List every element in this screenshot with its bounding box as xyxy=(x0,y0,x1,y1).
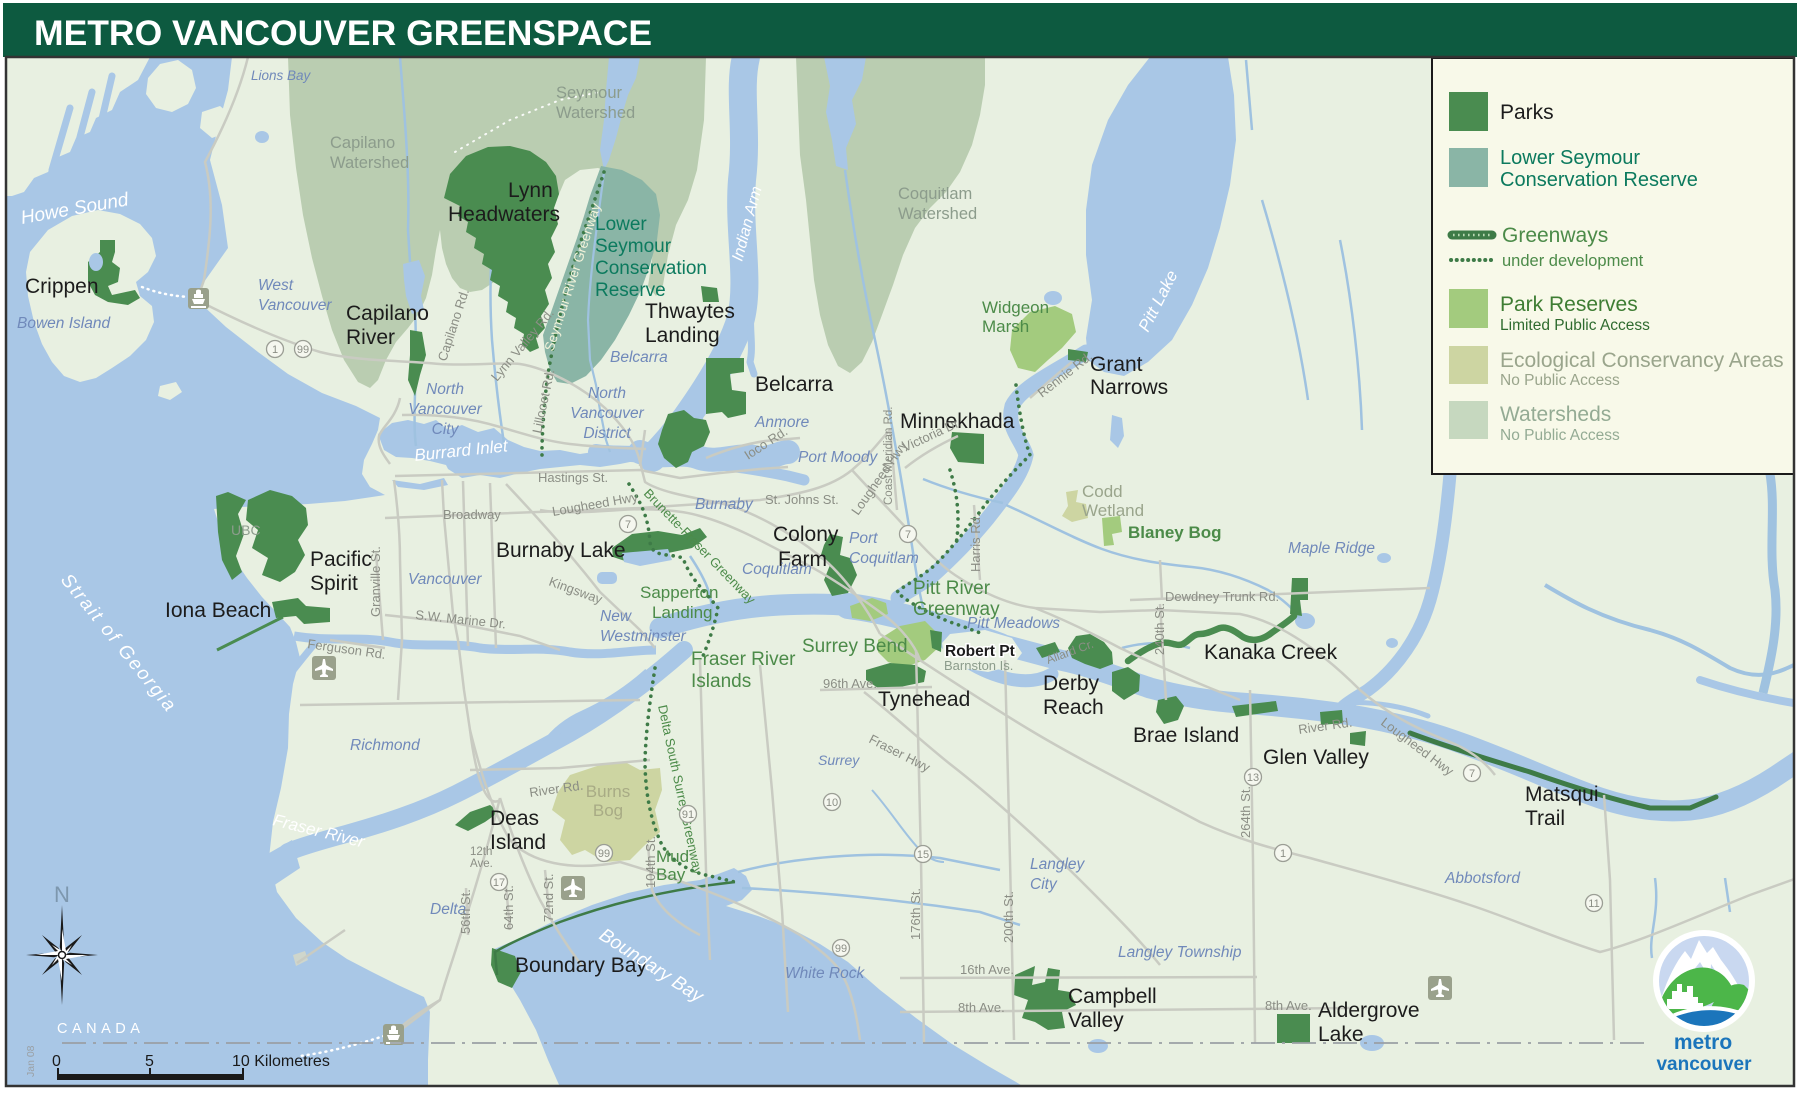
svg-text:Matsqui: Matsqui xyxy=(1525,783,1599,806)
svg-text:Vancouver: Vancouver xyxy=(258,297,332,314)
svg-text:Vancouver: Vancouver xyxy=(408,571,482,588)
svg-text:Derby: Derby xyxy=(1043,672,1100,695)
svg-text:Park Reserves: Park Reserves xyxy=(1500,293,1638,316)
svg-text:Conservation: Conservation xyxy=(595,258,707,279)
svg-text:8th Ave.: 8th Ave. xyxy=(958,1000,1005,1015)
svg-text:99: 99 xyxy=(598,848,610,860)
svg-text:Pitt River: Pitt River xyxy=(913,578,991,599)
svg-text:Spirit: Spirit xyxy=(310,572,358,595)
svg-text:Westminster: Westminster xyxy=(600,628,687,645)
svg-text:District: District xyxy=(583,425,631,442)
svg-text:White Rock: White Rock xyxy=(785,965,865,982)
svg-text:Watersheds: Watersheds xyxy=(1500,403,1611,426)
svg-text:Campbell: Campbell xyxy=(1068,985,1157,1008)
svg-text:Pitt Meadows: Pitt Meadows xyxy=(967,615,1060,632)
svg-text:Dewdney Trunk Rd.: Dewdney Trunk Rd. xyxy=(1165,589,1279,604)
svg-text:Watershed: Watershed xyxy=(898,205,977,223)
svg-text:Capilano: Capilano xyxy=(330,134,395,152)
svg-text:Greenways: Greenways xyxy=(1502,224,1608,247)
svg-text:8th Ave.: 8th Ave. xyxy=(1265,998,1312,1013)
svg-text:7: 7 xyxy=(625,519,631,531)
svg-text:Vancouver: Vancouver xyxy=(408,401,482,418)
svg-text:Surrey: Surrey xyxy=(818,752,860,768)
svg-text:10: 10 xyxy=(826,797,838,809)
svg-text:Barnston Is.: Barnston Is. xyxy=(944,658,1013,673)
svg-text:Jan 08: Jan 08 xyxy=(25,1045,37,1077)
svg-text:10 Kilometres: 10 Kilometres xyxy=(232,1053,330,1070)
svg-text:Capilano: Capilano xyxy=(346,302,429,325)
svg-text:Lower: Lower xyxy=(595,214,647,235)
svg-text:5: 5 xyxy=(145,1053,154,1070)
svg-text:15: 15 xyxy=(917,849,929,861)
svg-text:Belcarra: Belcarra xyxy=(610,349,668,366)
svg-text:Landing: Landing xyxy=(652,603,713,622)
svg-text:Vancouver: Vancouver xyxy=(570,405,644,422)
svg-text:Conservation Reserve: Conservation Reserve xyxy=(1500,169,1698,191)
svg-text:Hastings St.: Hastings St. xyxy=(538,470,608,485)
svg-text:17: 17 xyxy=(493,877,505,889)
svg-text:56th St.: 56th St. xyxy=(458,889,473,934)
svg-text:Colony: Colony xyxy=(773,523,839,546)
svg-text:Tynehead: Tynehead xyxy=(878,688,970,711)
svg-text:St. Johns St.: St. Johns St. xyxy=(765,492,839,507)
svg-text:Richmond: Richmond xyxy=(350,737,421,754)
svg-text:Headwaters: Headwaters xyxy=(448,203,560,226)
svg-text:99: 99 xyxy=(835,943,847,955)
svg-text:Burns: Burns xyxy=(586,782,630,801)
svg-text:Belcarra: Belcarra xyxy=(755,373,834,396)
svg-text:River: River xyxy=(346,326,395,349)
svg-text:Langley: Langley xyxy=(1030,856,1086,873)
svg-text:Coast Meridian Rd.: Coast Meridian Rd. xyxy=(883,407,895,505)
svg-text:1: 1 xyxy=(272,344,278,356)
svg-text:Limited Public Access: Limited Public Access xyxy=(1500,317,1650,334)
svg-text:No Public Access: No Public Access xyxy=(1500,427,1620,444)
svg-text:North: North xyxy=(426,381,464,398)
svg-text:Deas: Deas xyxy=(490,807,539,830)
svg-text:under development: under development xyxy=(1502,252,1644,270)
svg-text:Iona Beach: Iona Beach xyxy=(165,599,271,622)
svg-text:City: City xyxy=(1030,876,1058,893)
svg-text:0: 0 xyxy=(52,1053,61,1070)
svg-text:72nd St.: 72nd St. xyxy=(541,874,556,922)
svg-text:240th St.: 240th St. xyxy=(1152,603,1167,655)
svg-text:Reach: Reach xyxy=(1043,696,1104,719)
svg-text:Islands: Islands xyxy=(691,671,751,692)
svg-text:Aldergrove: Aldergrove xyxy=(1318,999,1420,1022)
svg-text:Brae Island: Brae Island xyxy=(1133,724,1239,747)
svg-text:Watershed: Watershed xyxy=(556,104,635,122)
svg-text:N: N xyxy=(54,882,70,907)
svg-text:Lions Bay: Lions Bay xyxy=(251,68,312,83)
svg-text:200th St.: 200th St. xyxy=(1001,891,1016,943)
svg-text:No Public Access: No Public Access xyxy=(1500,372,1620,389)
svg-text:Abbotsford: Abbotsford xyxy=(1444,870,1521,887)
svg-text:METRO VANCOUVER GREENSPACE: METRO VANCOUVER GREENSPACE xyxy=(34,13,652,53)
svg-text:Lynn: Lynn xyxy=(508,179,553,202)
svg-text:11: 11 xyxy=(1588,898,1599,910)
svg-text:Port Moody: Port Moody xyxy=(798,449,879,466)
svg-text:Grant: Grant xyxy=(1090,353,1143,376)
svg-text:Harris Rd.: Harris Rd. xyxy=(968,513,983,572)
svg-text:North: North xyxy=(588,385,626,402)
svg-text:New: New xyxy=(600,608,633,625)
svg-text:Codd: Codd xyxy=(1082,482,1123,501)
svg-text:7: 7 xyxy=(905,529,911,541)
svg-text:12th: 12th xyxy=(470,846,492,858)
svg-text:Lower Seymour: Lower Seymour xyxy=(1500,147,1640,169)
svg-text:Narrows: Narrows xyxy=(1090,376,1168,399)
svg-text:Trail: Trail xyxy=(1525,807,1565,830)
svg-text:Crippen: Crippen xyxy=(25,275,99,298)
svg-text:City: City xyxy=(432,421,460,438)
svg-text:Glen Valley: Glen Valley xyxy=(1263,746,1369,769)
svg-text:UBC: UBC xyxy=(231,522,261,538)
svg-text:Broadway: Broadway xyxy=(443,507,501,522)
svg-text:264th St.: 264th St. xyxy=(1238,786,1253,838)
svg-text:CANADA: CANADA xyxy=(57,1021,144,1037)
svg-text:16th Ave.: 16th Ave. xyxy=(960,962,1014,977)
svg-text:Thwaytes: Thwaytes xyxy=(645,300,735,323)
svg-text:Island: Island xyxy=(490,831,546,854)
svg-text:104th St.: 104th St. xyxy=(643,836,658,888)
svg-text:vancouver: vancouver xyxy=(1656,1054,1752,1075)
svg-text:Port: Port xyxy=(849,530,878,547)
svg-text:7: 7 xyxy=(1469,768,1475,780)
svg-text:Burnaby Lake: Burnaby Lake xyxy=(496,539,626,562)
svg-text:Maple Ridge: Maple Ridge xyxy=(1288,540,1375,557)
svg-text:Coquitlam: Coquitlam xyxy=(898,185,972,203)
svg-text:Langley Township: Langley Township xyxy=(1118,944,1242,961)
svg-text:Landing: Landing xyxy=(645,324,720,347)
svg-text:Seymour: Seymour xyxy=(556,84,623,102)
svg-text:1: 1 xyxy=(1280,848,1286,860)
svg-text:Surrey Bend: Surrey Bend xyxy=(802,636,908,657)
svg-text:91: 91 xyxy=(682,809,694,821)
svg-text:Mud: Mud xyxy=(656,847,689,866)
svg-text:Ecological Conservancy Areas: Ecological Conservancy Areas xyxy=(1500,349,1784,372)
svg-text:Bowen Island: Bowen Island xyxy=(17,315,111,332)
svg-text:Ave.: Ave. xyxy=(470,858,493,870)
svg-text:Blaney Bog: Blaney Bog xyxy=(1128,523,1222,542)
svg-text:Kanaka Creek: Kanaka Creek xyxy=(1204,641,1338,664)
svg-text:Burnaby: Burnaby xyxy=(695,496,754,513)
svg-text:Bog: Bog xyxy=(593,801,623,820)
svg-text:99: 99 xyxy=(297,344,309,356)
svg-text:West: West xyxy=(258,277,294,294)
svg-text:Granville St.: Granville St. xyxy=(368,546,383,617)
svg-text:Coquitlam: Coquitlam xyxy=(742,561,812,578)
svg-text:Valley: Valley xyxy=(1068,1009,1124,1032)
svg-text:96th Ave.: 96th Ave. xyxy=(823,676,877,691)
svg-text:metro: metro xyxy=(1674,1031,1732,1054)
svg-text:Seymour: Seymour xyxy=(595,236,672,257)
svg-text:Wetland: Wetland xyxy=(1082,501,1144,520)
svg-text:Pacific: Pacific xyxy=(310,548,372,571)
svg-text:176th St.: 176th St. xyxy=(908,888,923,940)
svg-text:Reserve: Reserve xyxy=(595,280,666,301)
svg-text:Marsh: Marsh xyxy=(982,317,1029,336)
svg-text:13: 13 xyxy=(1247,772,1259,784)
svg-text:Fraser River: Fraser River xyxy=(691,649,796,670)
svg-text:Sapperton: Sapperton xyxy=(640,583,718,602)
svg-text:Widgeon: Widgeon xyxy=(982,298,1049,317)
svg-text:Coquitlam: Coquitlam xyxy=(849,550,919,567)
svg-text:Bay: Bay xyxy=(656,865,686,884)
svg-text:Watershed: Watershed xyxy=(330,154,409,172)
svg-text:Parks: Parks xyxy=(1500,101,1554,124)
svg-text:64th St.: 64th St. xyxy=(501,885,516,930)
